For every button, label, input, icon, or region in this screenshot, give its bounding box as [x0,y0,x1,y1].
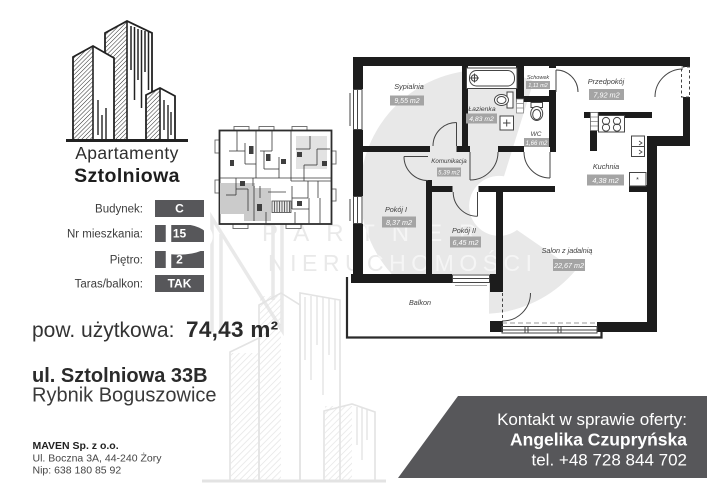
svg-text:Komunikacja: Komunikacja [431,158,467,165]
svg-text:Nip: 638 180 85 92: Nip: 638 180 85 92 [33,465,122,477]
svg-text:Nr mieszkania:: Nr mieszkania: [67,229,143,241]
svg-text:Balkon: Balkon [409,298,431,307]
svg-text:tel. +48 728 844 702: tel. +48 728 844 702 [532,451,688,470]
svg-text:Sypialnia: Sypialnia [394,82,424,91]
svg-text:6,45 m2: 6,45 m2 [453,238,479,247]
svg-text:Budynek:: Budynek: [95,204,143,216]
svg-text:C: C [175,202,184,216]
svg-text:*: * [636,177,639,184]
svg-text:pow. użytkowa:: pow. użytkowa: [32,319,174,342]
svg-text:MAVEN Sp. z o.o.: MAVEN Sp. z o.o. [33,440,119,452]
svg-text:Rybnik Boguszowice: Rybnik Boguszowice [32,385,217,407]
svg-text:Pokój II: Pokój II [452,226,476,235]
svg-text:Piętro:: Piętro: [110,255,143,267]
svg-text:Kuchnia: Kuchnia [593,162,619,171]
svg-text:Schowek: Schowek [527,75,550,81]
svg-text:74,43 m²: 74,43 m² [186,317,279,342]
svg-text:Apartamenty: Apartamenty [75,143,179,163]
svg-text:8,37 m2: 8,37 m2 [386,218,412,227]
svg-text:Sztolniowa: Sztolniowa [74,165,180,187]
svg-text:4,38 m2: 4,38 m2 [592,176,618,185]
svg-text:Angelika Czupryńska: Angelika Czupryńska [510,430,687,450]
svg-text:Taras/balkon:: Taras/balkon: [75,279,143,291]
svg-text:TAK: TAK [168,277,192,291]
svg-text:4,83 m2: 4,83 m2 [469,116,494,123]
svg-text:WC: WC [531,131,542,138]
svg-text:5,39 m2: 5,39 m2 [438,171,460,177]
svg-text:9,55 m2: 9,55 m2 [394,98,419,105]
svg-text:Przedpokój: Przedpokój [588,77,625,86]
svg-text:1,11 m2: 1,11 m2 [528,83,547,89]
svg-text:Kontakt w sprawie oferty:: Kontakt w sprawie oferty: [497,410,687,429]
svg-text:15: 15 [173,227,187,241]
svg-text:1,66 m2: 1,66 m2 [526,141,548,147]
svg-text:Pokój I: Pokój I [385,205,407,214]
svg-text:Łazienka: Łazienka [468,106,495,113]
svg-text:Salon z jadalnią: Salon z jadalnią [542,246,593,255]
svg-text:Ul. Boczna 3A, 44-240 Żory: Ul. Boczna 3A, 44-240 Żory [33,452,163,465]
svg-text:7,92 m2: 7,92 m2 [593,91,619,100]
svg-text:22,67 m2: 22,67 m2 [553,261,584,270]
svg-text:2: 2 [176,253,183,267]
